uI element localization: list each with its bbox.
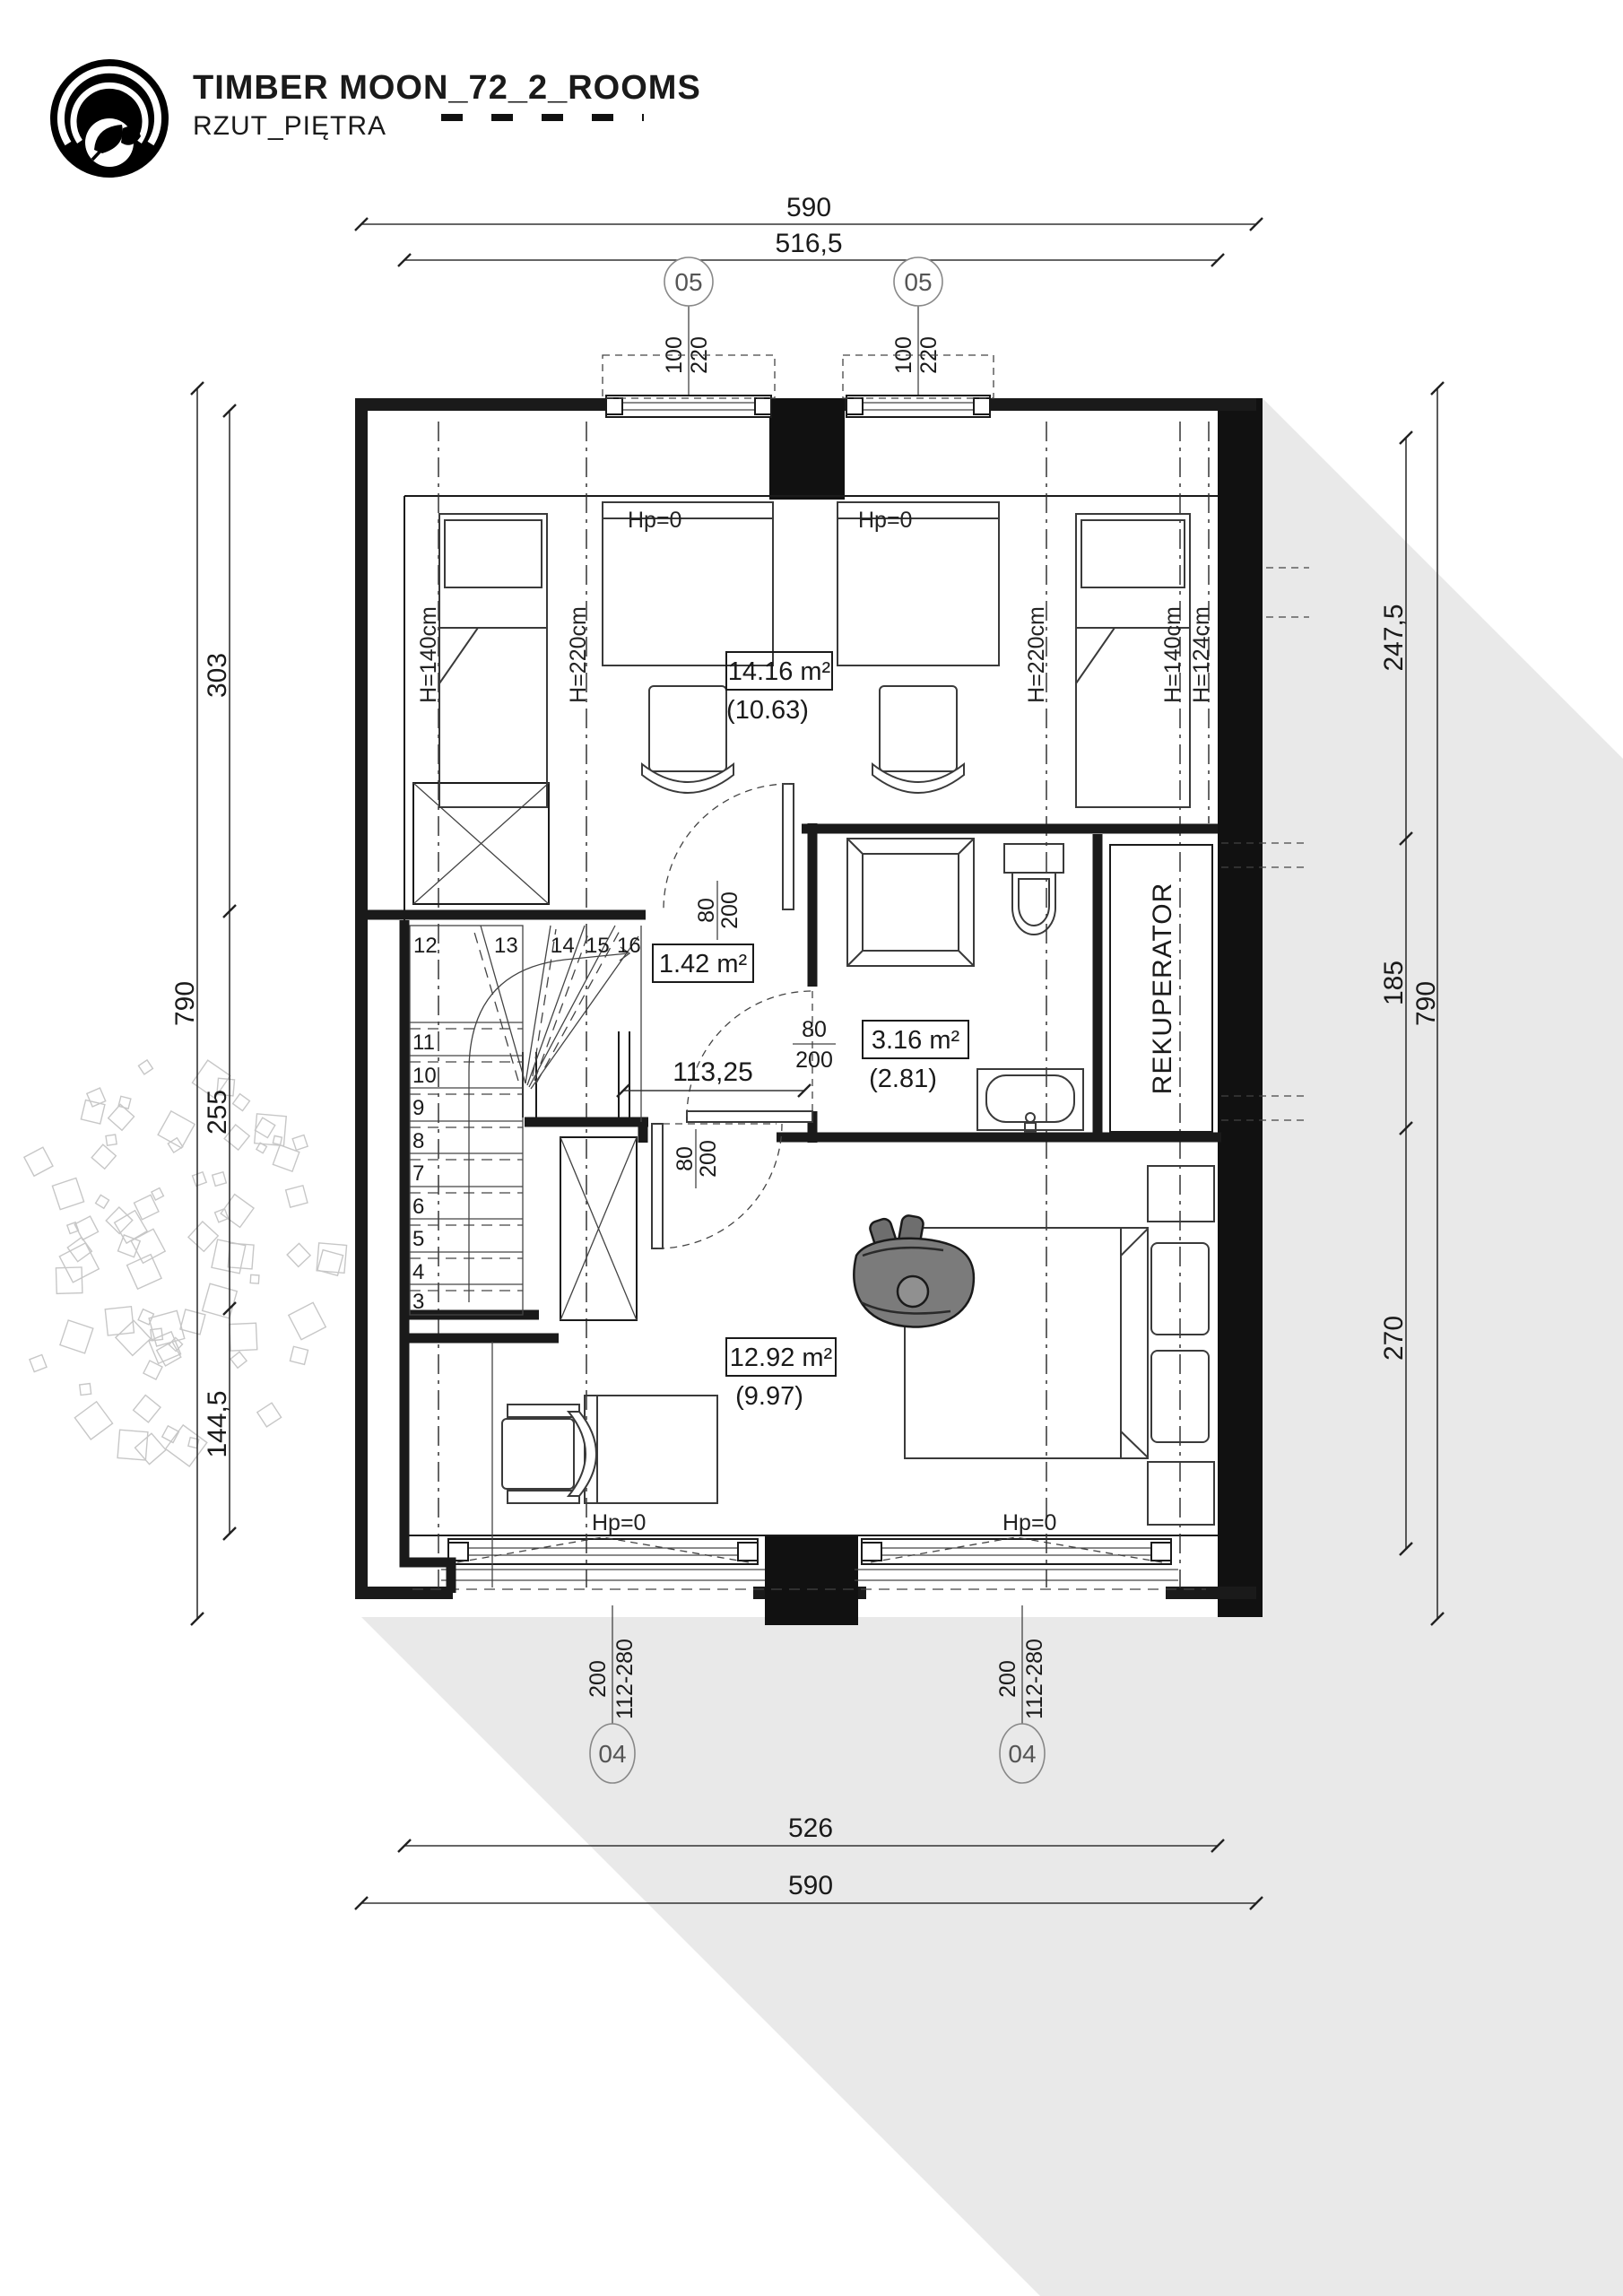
window-bottom-left	[441, 1537, 765, 1580]
svg-text:H=220cm: H=220cm	[1024, 606, 1049, 703]
svg-text:113,25: 113,25	[673, 1057, 753, 1087]
door-top-room: 80 200	[664, 784, 794, 940]
room-label-bottom: 12.92 m² (9.97)	[726, 1338, 836, 1411]
sink	[977, 1069, 1083, 1132]
svg-text:200: 200	[696, 1140, 721, 1178]
height-labels: H=140cm H=220cm H=220cm H=140cm H=124cm	[416, 606, 1214, 703]
page-subtitle: RZUT_PIĘTRA	[193, 111, 386, 141]
door-bathroom: 80 200	[687, 991, 836, 1122]
floor-plan-drawing: TIMBER MOON_72_2_ROOMS RZUT_PIĘTRA 590 5…	[0, 0, 1623, 2296]
svg-text:3: 3	[412, 1290, 424, 1314]
building-shadow	[361, 398, 1623, 2296]
shower	[847, 839, 974, 966]
stair-treads	[410, 926, 638, 1291]
dim-bottom-inner: 526	[788, 1813, 833, 1843]
exterior-walls	[361, 398, 1263, 1625]
svg-text:13: 13	[494, 934, 518, 958]
svg-text:05: 05	[674, 268, 702, 296]
dim-left-seg2: 255	[203, 1090, 232, 1135]
svg-text:H=140cm: H=140cm	[416, 606, 441, 703]
svg-text:H=220cm: H=220cm	[566, 606, 591, 703]
svg-text:8: 8	[412, 1129, 424, 1153]
dim-right-seg1: 247,5	[1379, 604, 1409, 671]
dim-left-total: 790	[170, 981, 200, 1026]
svg-text:H=140cm: H=140cm	[1160, 606, 1185, 703]
wardrobe-top-room	[413, 783, 549, 904]
window-bottom-right	[855, 1537, 1178, 1580]
svg-text:16: 16	[617, 934, 641, 958]
window-marker-05-right: 05 100 220	[891, 257, 942, 398]
svg-text:Hp=0: Hp=0	[1002, 1510, 1056, 1535]
nightstand-top	[1148, 1166, 1214, 1222]
svg-text:1.42 m²: 1.42 m²	[659, 950, 748, 978]
svg-text:12.92 m²: 12.92 m²	[730, 1344, 833, 1372]
svg-text:5: 5	[412, 1227, 424, 1251]
dim-left-seg1: 303	[203, 653, 232, 698]
dim-bottom-outer: 590	[788, 1871, 833, 1900]
interior-walls	[361, 823, 1221, 1593]
svg-text:15: 15	[586, 934, 610, 958]
dim-hall-width: 113,25	[617, 1057, 811, 1097]
room-label-bath: 3.16 m² (2.81)	[863, 1021, 968, 1093]
dim-top: 590 516,5	[355, 193, 1263, 266]
toilet	[1004, 844, 1063, 935]
dim-left: 790 303 255 144,5	[170, 382, 236, 1625]
svg-text:3.16 m²: 3.16 m²	[872, 1026, 960, 1055]
stair-walk-line	[469, 953, 628, 1302]
svg-text:6: 6	[412, 1195, 424, 1219]
dim-right-seg2: 185	[1379, 961, 1409, 1005]
desk-bottom	[585, 1396, 717, 1503]
bed-top-left	[439, 514, 547, 807]
dim-right-total: 790	[1411, 981, 1441, 1026]
dim-top-inner: 516,5	[775, 229, 842, 258]
svg-text:80: 80	[673, 1146, 698, 1171]
page-title: TIMBER MOON_72_2_ROOMS	[193, 69, 701, 107]
logo	[50, 59, 169, 178]
svg-text:7: 7	[412, 1161, 424, 1186]
svg-text:80: 80	[694, 898, 719, 923]
svg-text:200: 200	[586, 1660, 611, 1698]
svg-text:80: 80	[802, 1017, 827, 1042]
wheelchair-person	[854, 1214, 974, 1326]
svg-text:4: 4	[412, 1260, 424, 1284]
svg-text:14.16 m²: 14.16 m²	[728, 657, 831, 686]
dim-top-outer: 590	[786, 193, 831, 222]
door-bottom-room: 80 200	[652, 1124, 782, 1248]
svg-text:(9.97): (9.97)	[735, 1382, 803, 1411]
svg-text:200: 200	[717, 891, 742, 929]
svg-text:112-280: 112-280	[1022, 1639, 1047, 1719]
svg-text:Hp=0: Hp=0	[858, 508, 912, 533]
wardrobe-hall	[560, 1137, 637, 1320]
svg-text:04: 04	[598, 1740, 626, 1768]
svg-text:14: 14	[551, 934, 575, 958]
chair-top-left	[642, 686, 733, 793]
room-label-top: 14.16 m² (10.63)	[726, 652, 832, 725]
svg-text:04: 04	[1008, 1740, 1036, 1768]
tree-decoration	[24, 1060, 347, 1466]
svg-text:10: 10	[412, 1064, 437, 1088]
svg-text:9: 9	[412, 1096, 424, 1120]
window-marker-05-left: 05 100 220	[662, 257, 713, 398]
svg-text:Hp=0: Hp=0	[592, 1510, 646, 1535]
svg-text:05: 05	[904, 268, 932, 296]
svg-text:11: 11	[412, 1031, 435, 1055]
rekuperator-label: REKUPERATOR	[1148, 883, 1177, 1095]
svg-text:(10.63): (10.63)	[726, 696, 809, 725]
svg-text:200: 200	[995, 1660, 1020, 1698]
svg-text:12: 12	[413, 934, 438, 958]
dim-left-seg3: 144,5	[203, 1390, 232, 1457]
svg-text:H=124cm: H=124cm	[1189, 606, 1214, 703]
svg-text:112-280: 112-280	[612, 1639, 638, 1719]
chair-top-right	[872, 686, 964, 793]
svg-text:200: 200	[795, 1048, 833, 1073]
svg-text:(2.81): (2.81)	[869, 1065, 937, 1093]
svg-text:Hp=0: Hp=0	[628, 508, 681, 533]
nightstand-bottom	[1148, 1462, 1214, 1525]
chair-bottom	[502, 1405, 596, 1503]
room-label-hall: 1.42 m²	[653, 944, 753, 982]
dim-right-seg3: 270	[1379, 1316, 1409, 1361]
